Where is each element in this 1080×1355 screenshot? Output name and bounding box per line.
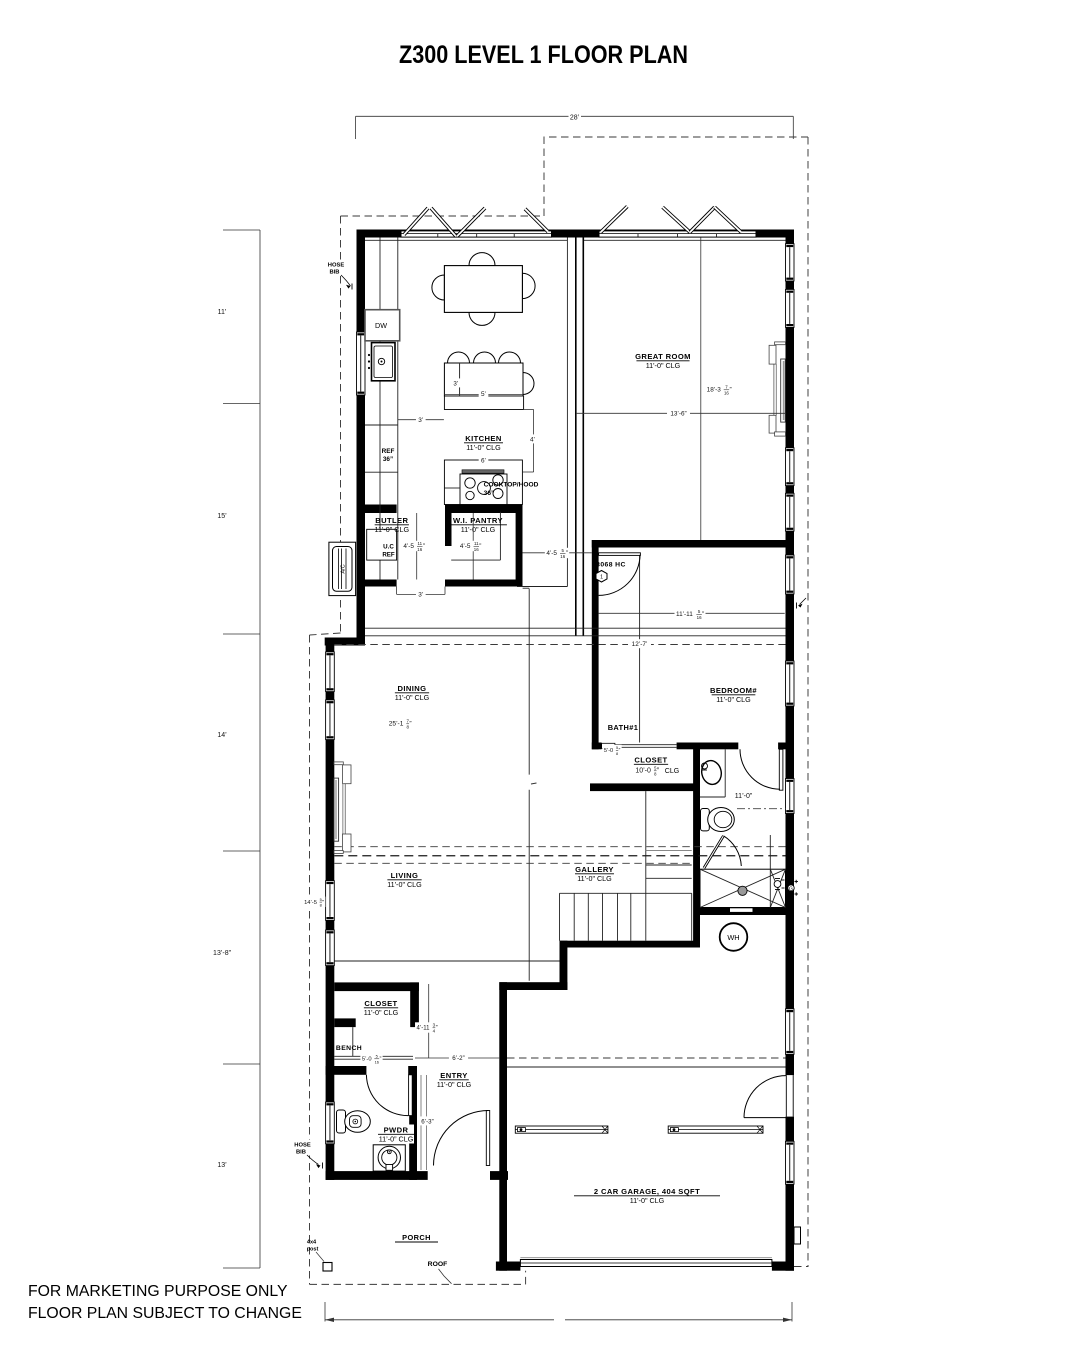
svg-text:11'-0" CLG: 11'-0" CLG [461, 525, 496, 534]
svg-text:”: ” [423, 543, 425, 550]
svg-text:2 CAR GARAGE, 404 SQFT: 2 CAR GARAGE, 404 SQFT [594, 1187, 700, 1196]
svg-text:ROOF: ROOF [428, 1261, 448, 1268]
svg-text:16: 16 [375, 1059, 379, 1064]
svg-text:6’-2”: 6’-2” [452, 1055, 464, 1062]
svg-text:U.C: U.C [383, 544, 394, 551]
svg-text:GREAT ROOM: GREAT ROOM [635, 352, 691, 361]
svg-text:11'-0" CLG: 11'-0" CLG [630, 1196, 665, 1205]
svg-text:BIB: BIB [296, 1150, 306, 1156]
svg-text:5: 5 [376, 1054, 378, 1059]
svg-text:CLOSET: CLOSET [634, 756, 667, 765]
svg-text:3’: 3’ [418, 592, 424, 599]
svg-text:HOSE: HOSE [294, 1143, 311, 1149]
svg-text:5’-0: 5’-0 [604, 748, 613, 754]
svg-text:12’-7’: 12’-7’ [632, 641, 648, 648]
svg-text:13’-6”: 13’-6” [670, 411, 686, 418]
svg-text:BUTLER: BUTLER [375, 516, 408, 525]
svg-text:5’: 5’ [481, 391, 487, 398]
svg-text:11'-0" CLG: 11'-0" CLG [364, 1008, 399, 1017]
svg-text:GALLERY: GALLERY [575, 865, 614, 874]
svg-text:”: ” [379, 1057, 381, 1063]
svg-text:36”: 36” [383, 456, 393, 463]
svg-text:5’-0: 5’-0 [362, 1057, 372, 1063]
svg-text:”: ” [619, 748, 621, 754]
svg-text:11’-0”: 11’-0” [735, 793, 753, 800]
svg-text:4’: 4’ [530, 436, 536, 443]
svg-text:ENTRY: ENTRY [440, 1071, 467, 1080]
svg-text:10’-0: 10’-0 [635, 768, 651, 775]
svg-text:CLOSET: CLOSET [364, 999, 397, 1008]
svg-text:KITCHEN: KITCHEN [465, 434, 502, 443]
svg-text:post: post [307, 1247, 319, 1253]
svg-text:4’-5: 4’-5 [460, 543, 471, 550]
svg-text:1: 1 [600, 575, 603, 581]
svg-text:13’: 13’ [217, 1162, 227, 1169]
svg-text:4x4: 4x4 [307, 1240, 317, 1246]
svg-text:”: ” [409, 721, 411, 728]
svg-text:11'-0" CLG: 11'-0" CLG [387, 880, 422, 889]
svg-text:WH: WH [727, 933, 739, 942]
svg-text:PORCH: PORCH [402, 1233, 431, 1242]
svg-text:14’-5: 14’-5 [304, 900, 317, 906]
svg-text:LIVING: LIVING [391, 871, 419, 880]
svg-text:6’: 6’ [481, 457, 487, 464]
svg-text:4’-5: 4’-5 [546, 550, 557, 557]
svg-text:11’-0” CLG: 11’-0” CLG [379, 1135, 414, 1144]
svg-text:FLOOR PLAN SUBJECT TO CHANGE: FLOOR PLAN SUBJECT TO CHANGE [28, 1305, 302, 1322]
svg-text:25’-1: 25’-1 [389, 721, 404, 728]
svg-text:11'-0" CLG: 11'-0" CLG [395, 693, 430, 702]
svg-text:3’: 3’ [453, 380, 458, 387]
svg-text:CLG: CLG [665, 768, 679, 775]
svg-text:”: ” [566, 550, 568, 557]
svg-text:11'-0" CLG: 11'-0" CLG [437, 1080, 472, 1089]
svg-text:COOKTOP/HOOD: COOKTOP/HOOD [484, 482, 539, 489]
svg-text:W.I. PANTRY: W.I. PANTRY [453, 516, 503, 525]
svg-text:A/C: A/C [341, 564, 347, 573]
svg-text:18’-3: 18’-3 [707, 387, 722, 394]
svg-text:11'-0" CLG: 11'-0" CLG [375, 525, 410, 534]
svg-text:36”: 36” [484, 490, 495, 497]
svg-text:11’: 11’ [218, 309, 227, 316]
svg-text:BATH#1: BATH#1 [608, 723, 639, 732]
svg-text:HOSE: HOSE [328, 263, 345, 269]
svg-text:4’-11: 4’-11 [417, 1026, 431, 1032]
svg-text:FOR MARKETING PURPOSE ONLY: FOR MARKETING PURPOSE ONLY [28, 1283, 288, 1300]
svg-text:14’: 14’ [217, 732, 227, 739]
svg-text:”: ” [702, 611, 704, 618]
svg-text:13’-8”: 13’-8” [213, 950, 232, 957]
svg-text:3068 HC: 3068 HC [596, 562, 626, 569]
svg-text:11'-0" CLG: 11'-0" CLG [466, 443, 501, 452]
svg-text:11’-11: 11’-11 [676, 611, 693, 618]
svg-text:REF: REF [382, 448, 395, 455]
svg-text:28’: 28’ [570, 115, 580, 122]
svg-text:”: ” [322, 900, 324, 906]
svg-text:11'-0" CLG: 11'-0" CLG [716, 695, 751, 704]
svg-text:”: ” [479, 543, 481, 550]
svg-text:DW: DW [375, 321, 387, 330]
svg-text:BENCH: BENCH [336, 1045, 362, 1052]
svg-text:4’-5: 4’-5 [403, 543, 414, 550]
svg-text:11'-0" CLG: 11'-0" CLG [646, 361, 681, 370]
svg-text:”: ” [436, 1026, 438, 1032]
svg-text:G: G [789, 887, 793, 893]
svg-text:15’: 15’ [217, 513, 227, 520]
svg-text:BIB: BIB [330, 270, 340, 276]
svg-text:PWDR: PWDR [384, 1126, 409, 1135]
svg-text:BEDROOM#: BEDROOM# [710, 686, 757, 695]
svg-text:REF: REF [382, 552, 395, 559]
svg-text:6’-3”: 6’-3” [421, 1118, 433, 1125]
svg-text:3’: 3’ [418, 417, 424, 424]
svg-text:11'-0" CLG: 11'-0" CLG [577, 874, 612, 883]
svg-text:”: ” [729, 387, 731, 394]
svg-text:Z300 LEVEL 1 FLOOR PLAN: Z300 LEVEL 1 FLOOR PLAN [399, 41, 688, 69]
svg-text:DINING: DINING [398, 684, 427, 693]
